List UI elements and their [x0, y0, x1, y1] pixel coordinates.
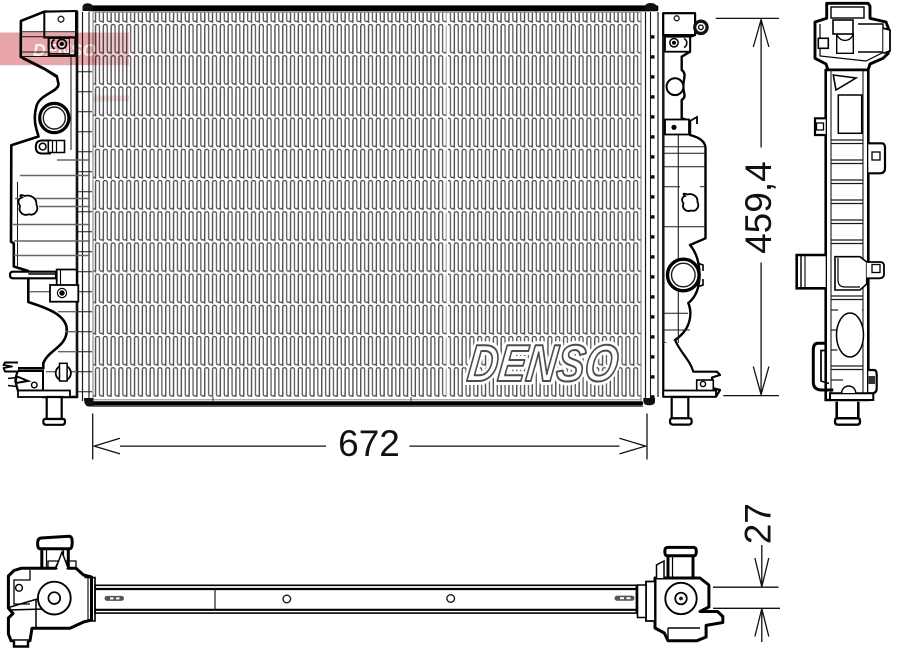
svg-text:459,4: 459,4	[738, 161, 779, 254]
svg-text:27: 27	[737, 503, 778, 544]
svg-text:DENSO: DENSO	[33, 40, 96, 60]
svg-text:672: 672	[338, 423, 400, 464]
svg-text:DENSO: DENSO	[465, 335, 622, 393]
